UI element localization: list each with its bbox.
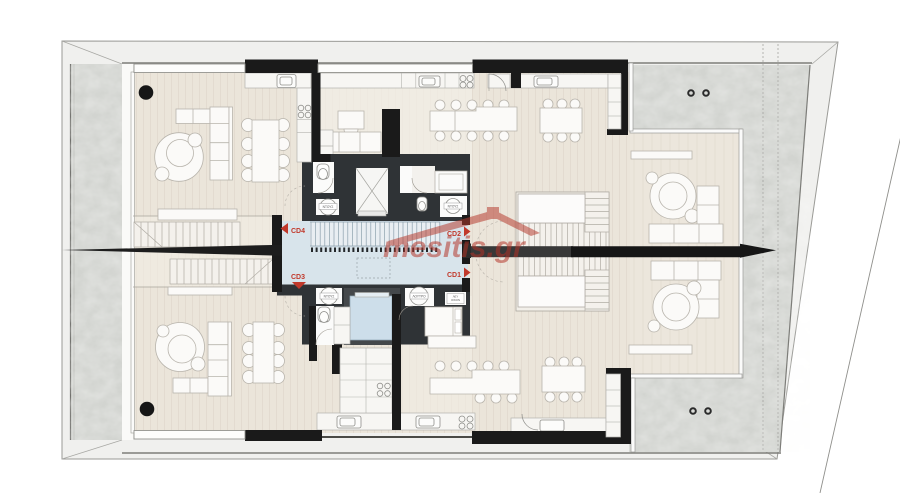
svg-text:ΝΤΟΥΣ: ΝΤΟΥΣ (448, 205, 459, 209)
svg-text:CD2: CD2 (447, 231, 461, 238)
svg-text:ΟΙΚΟΝ: ΟΙΚΟΝ (451, 298, 460, 302)
svg-text:ΝΤΟΥΣ: ΝΤΟΥΣ (324, 295, 335, 299)
svg-text:CD4: CD4 (291, 228, 305, 235)
svg-text:ΝΤΟΥΣ: ΝΤΟΥΣ (323, 205, 334, 209)
svg-text:ΛΟΥΤΡΟ: ΛΟΥΤΡΟ (412, 295, 426, 299)
svg-text:CD3: CD3 (291, 274, 305, 281)
svg-text:CD1: CD1 (447, 272, 461, 279)
